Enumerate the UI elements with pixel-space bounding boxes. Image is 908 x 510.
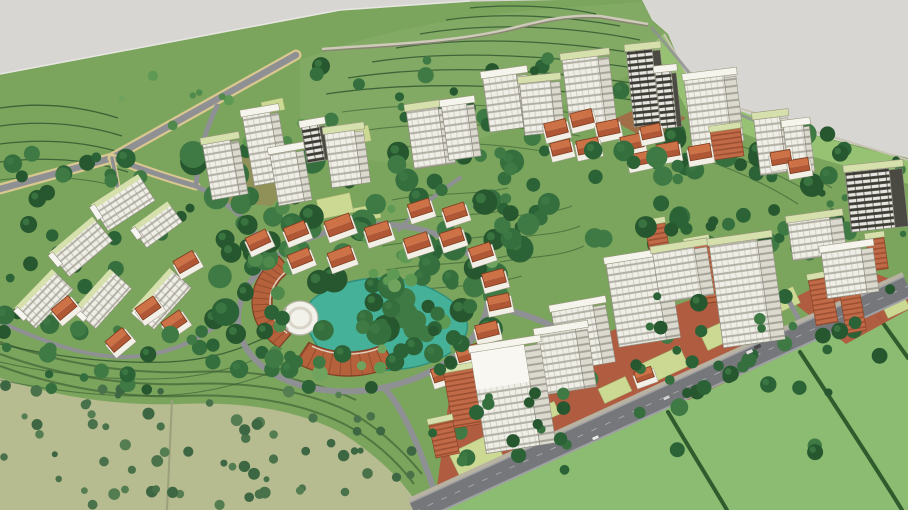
orange-building <box>709 122 745 160</box>
house-building <box>686 143 715 167</box>
dark-building <box>843 159 908 232</box>
masterplan-scene <box>0 0 908 510</box>
house-building <box>786 157 813 180</box>
masterplan-render <box>0 0 908 510</box>
